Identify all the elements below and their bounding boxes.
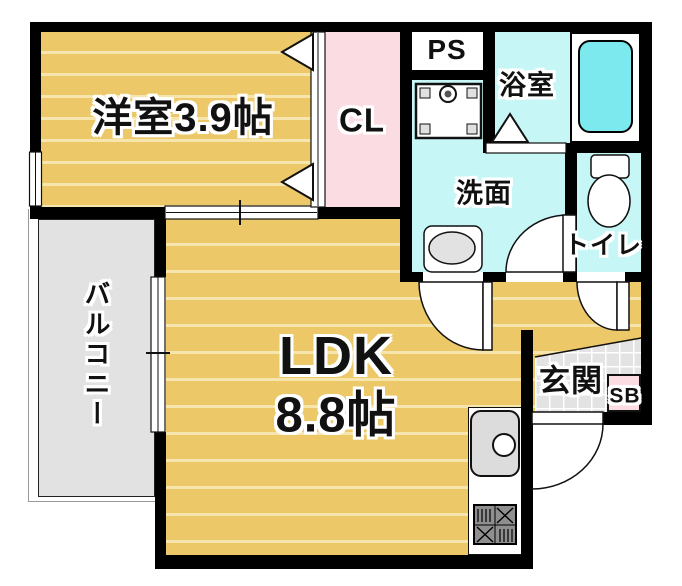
wall-washroom-bottom-b bbox=[483, 272, 506, 282]
wall-right bbox=[641, 22, 652, 425]
wall-washroom-toilet bbox=[565, 153, 577, 282]
wall-bottom bbox=[155, 555, 533, 569]
closet-label: CL bbox=[339, 104, 385, 137]
wall-ldk-left-bottom bbox=[155, 432, 166, 557]
wall-washroom-bottom-d bbox=[625, 272, 652, 282]
wall-entrance-bottom bbox=[603, 412, 652, 425]
wall-ldk-left-top bbox=[155, 219, 166, 277]
wall-ps-bath bbox=[483, 22, 495, 153]
washroom-label: 洗面 bbox=[456, 181, 512, 208]
washroom-floor bbox=[412, 80, 483, 272]
wall-closet-washroom bbox=[400, 22, 412, 282]
wall-ps-bottom bbox=[400, 70, 495, 80]
shoe-box-label: SB bbox=[609, 386, 640, 407]
wall-western-bottom-right bbox=[318, 207, 412, 219]
kitchen-counter bbox=[468, 407, 523, 555]
entrance-label: 玄関 bbox=[539, 366, 603, 397]
ldk-size-label: 8.8帖 bbox=[275, 392, 396, 441]
balcony-outline-line-left bbox=[28, 209, 29, 502]
toilet-label: トイレ bbox=[564, 234, 642, 259]
wall-kitchen-entrance bbox=[521, 330, 533, 557]
wall-western-bottom-left bbox=[30, 207, 165, 219]
wall-washroom-bottom-c bbox=[563, 272, 577, 282]
wall-top bbox=[30, 22, 652, 32]
bathroom-door-track bbox=[486, 143, 566, 153]
bathroom-label: 浴室 bbox=[499, 73, 555, 100]
washroom-floor-right bbox=[483, 153, 565, 272]
balcony-outline-line-bottom bbox=[28, 501, 158, 502]
wall-bath-bottom bbox=[566, 143, 652, 153]
wall-washroom-bottom-a bbox=[400, 272, 423, 282]
bathtub bbox=[578, 40, 633, 133]
front-door bbox=[532, 412, 603, 489]
western-room-label: 洋室3.9帖 bbox=[92, 98, 274, 138]
wall-left bbox=[30, 22, 41, 215]
floor-plan: 洋室3.9帖 CL PS 浴室 洗面 トイレ バルコニー LDK 8.8帖 玄関… bbox=[0, 0, 682, 586]
ldk-label: LDK bbox=[279, 329, 393, 383]
closet-door-strip bbox=[311, 32, 325, 207]
pipe-space-label: PS bbox=[427, 36, 466, 64]
balcony-label: バルコニー bbox=[83, 280, 109, 430]
